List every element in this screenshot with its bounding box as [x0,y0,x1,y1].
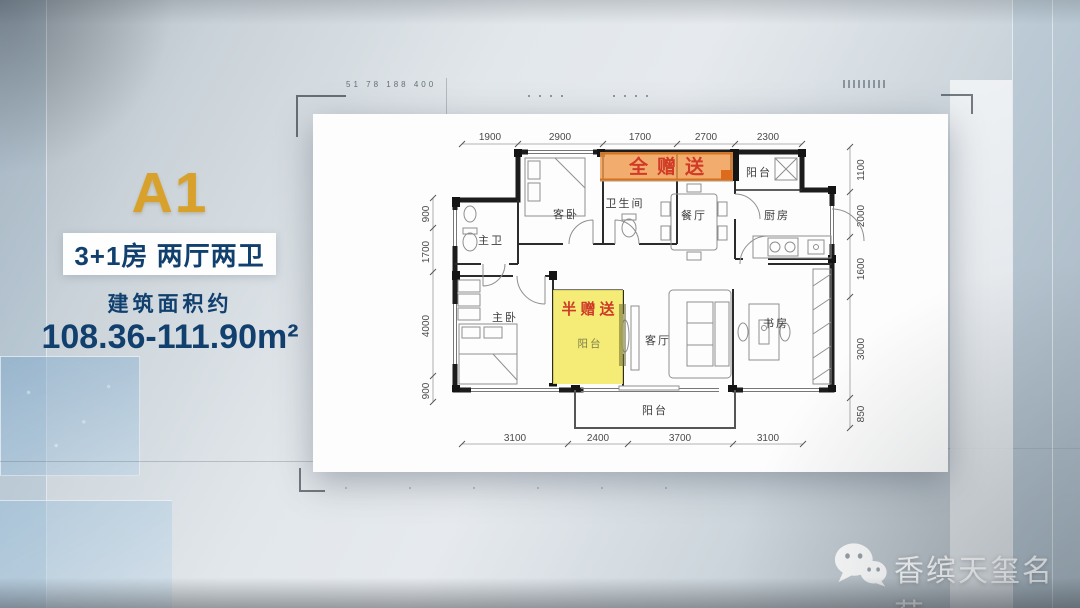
room-label-kitchen: 厨房 [764,209,790,222]
area-value: 108.36-111.90m² [22,318,318,357]
room-label-balcony-bottom: 阳台 [642,403,668,417]
svg-text:4000: 4000 [421,314,432,337]
wechat-icon [834,541,888,589]
background-glass-cube [0,356,140,476]
unit-code: A1 [60,160,280,226]
svg-text:3700: 3700 [669,433,692,444]
svg-text:1700: 1700 [421,240,432,263]
svg-text:1100: 1100 [856,159,867,181]
svg-text:3100: 3100 [504,433,527,444]
decor-dot-row-bottom [345,487,667,489]
room-label-balcony-half: 阳台 [578,337,603,350]
floorplan-card: 1900 2900 1700 2700 2300 3100 2400 3700 … [313,114,948,472]
svg-text:900: 900 [421,382,432,399]
decor-dot-row [613,95,648,97]
svg-text:2700: 2700 [695,132,718,143]
brand-name: 香缤天玺名苑 [894,546,1080,608]
walls-inner [455,152,832,392]
svg-text:2000: 2000 [856,204,867,227]
background-glass-cube-lower [0,500,172,608]
windows [452,149,836,394]
decor-vertical-tick [446,78,447,114]
unit-layout: 3+1房 两厅两卫 [63,233,276,275]
dimension-lines [433,144,850,444]
area-label: 建筑面积约 [60,288,280,318]
svg-text:1700: 1700 [629,132,652,143]
room-label-study: 书房 [763,317,789,330]
background-pillar [950,80,1012,608]
wall-columns [452,149,836,392]
room-label-dining: 餐厅 [681,208,707,222]
room-label-bathroom: 卫生间 [606,196,645,210]
decor-dot-row [528,95,563,97]
svg-text:2300: 2300 [757,132,780,143]
floorplan-svg: 1900 2900 1700 2700 2300 3100 2400 3700 … [313,114,948,472]
room-label-master-bed: 主卧 [492,311,518,324]
furniture [458,158,831,384]
svg-text:1900: 1900 [479,132,502,143]
decor-barcode-marks [843,80,887,88]
background-shelf-line-left [0,461,313,462]
corner-bracket-top-right [941,94,973,114]
svg-text:900: 900 [421,205,432,222]
svg-text:850: 850 [856,405,867,422]
full-gift-label: 全赠送 [628,155,713,178]
svg-text:3100: 3100 [757,433,780,444]
dimension-ticks [430,141,853,447]
background-right-glass-panel [1012,0,1080,608]
svg-text:2900: 2900 [549,132,572,143]
svg-text:1600: 1600 [856,257,867,280]
room-label-master-bath: 主卫 [478,234,504,247]
decor-ruler-text: 51 78 188 400 [346,80,436,89]
room-label-balcony-top: 阳台 [746,165,772,179]
svg-text:2400: 2400 [587,433,610,444]
page: 51 78 188 400 A1 3+1房 两厅两卫 建筑面积约 108.36-… [0,0,1080,608]
room-label-living: 客厅 [645,333,671,347]
doors [483,194,864,390]
room-label-guest-bed: 客卧 [553,207,579,221]
half-gift-label: 半赠送 [561,300,618,318]
svg-text:3000: 3000 [856,337,867,360]
